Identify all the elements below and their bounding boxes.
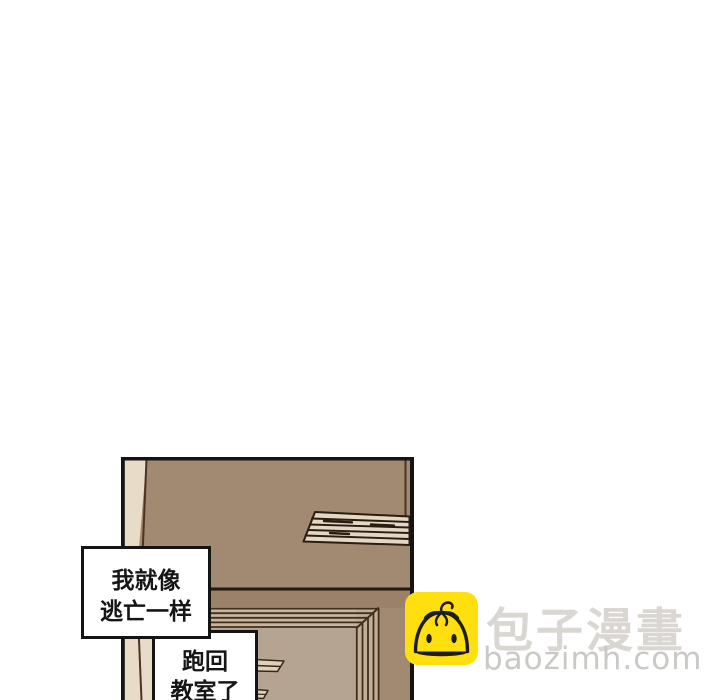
watermark-site-domain: baozimh.com [483, 641, 713, 677]
baozi-bun-face-icon [405, 592, 478, 665]
speech-bubble-1: 我就像 逃亡一样 [81, 546, 211, 639]
speech-text: 教室了 [155, 676, 255, 700]
comic-page: 跑回 教室了 我就像 逃亡一样 包子漫畫 [0, 0, 720, 700]
vent-grille [304, 512, 410, 545]
speech-text: 我就像 [84, 565, 208, 596]
speech-bubble-2: 跑回 教室了 [152, 630, 258, 700]
baozi-logo-icon [405, 592, 478, 665]
speech-text: 跑回 [155, 646, 255, 676]
speech-text: 逃亡一样 [84, 596, 208, 627]
